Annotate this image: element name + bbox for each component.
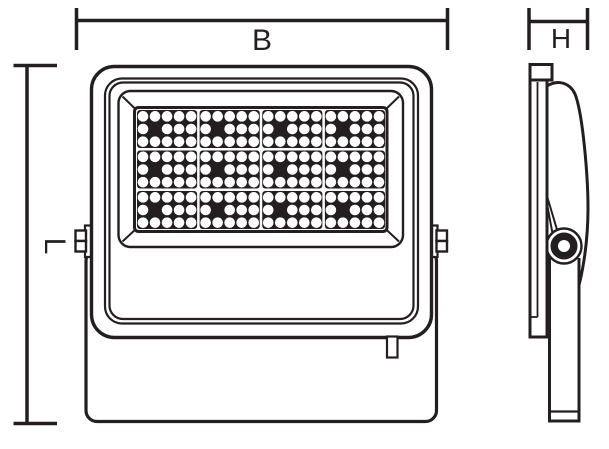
led-dot [138, 124, 149, 135]
led-dot [150, 192, 161, 203]
led-dot [362, 164, 373, 175]
led-dot [236, 192, 247, 203]
led-dot [248, 136, 259, 147]
led-dot [326, 164, 337, 175]
led-dot [275, 136, 286, 147]
led-dot-dark [337, 123, 349, 135]
led-dot [362, 205, 373, 216]
led-dot [200, 177, 211, 188]
led-dot-dark [211, 163, 223, 175]
led-dot [212, 111, 223, 122]
led-dot [338, 192, 349, 203]
led-dot [311, 152, 322, 163]
led-dot [186, 177, 197, 188]
led-dot [299, 136, 310, 147]
led-dot [224, 177, 235, 188]
led-dot [374, 124, 385, 135]
led-dot [362, 177, 373, 188]
led-dot [212, 192, 223, 203]
led-dot [350, 192, 361, 203]
dimension-height-label: L [38, 238, 71, 255]
led-dot [275, 192, 286, 203]
led-dot [350, 111, 361, 122]
led-dot [374, 205, 385, 216]
led-dot [236, 124, 247, 135]
led-dot [212, 136, 223, 147]
led-dot [299, 205, 310, 216]
led-dot [263, 124, 274, 135]
led-dot [299, 177, 310, 188]
side-top-cap [530, 65, 552, 81]
led-dot [311, 124, 322, 135]
front-view [76, 67, 448, 422]
led-dot [174, 205, 185, 216]
led-dot [138, 205, 149, 216]
led-dot [236, 205, 247, 216]
drawing-canvas: B H L [0, 0, 609, 449]
led-dot [311, 177, 322, 188]
led-dot [263, 111, 274, 122]
led-dot [326, 205, 337, 216]
led-dot [200, 152, 211, 163]
led-dot [326, 217, 337, 228]
led-dot-dark [149, 123, 161, 135]
led-dot [338, 111, 349, 122]
led-dot [248, 192, 259, 203]
led-dot [138, 111, 149, 122]
led-dot [299, 164, 310, 175]
led-dot [263, 152, 274, 163]
right-knob-bolt-lower [437, 241, 448, 252]
led-dot [186, 164, 197, 175]
led-dot [299, 111, 310, 122]
led-dot [287, 136, 298, 147]
led-dot [362, 111, 373, 122]
led-dot [138, 192, 149, 203]
led-dot [263, 205, 274, 216]
led-dot [224, 136, 235, 147]
led-dot [186, 136, 197, 147]
led-dot [150, 111, 161, 122]
led-dot [263, 217, 274, 228]
led-dot [287, 111, 298, 122]
led-dot [150, 217, 161, 228]
led-dot [326, 152, 337, 163]
led-dot [374, 136, 385, 147]
led-dot-dark [149, 204, 161, 216]
led-dot [287, 177, 298, 188]
led-dot [287, 152, 298, 163]
led-dot [200, 192, 211, 203]
led-dot [287, 124, 298, 135]
dimension-width-label: B [252, 24, 272, 57]
led-dot [287, 164, 298, 175]
led-dot [224, 111, 235, 122]
led-dot [162, 124, 173, 135]
led-dot [248, 152, 259, 163]
led-dot [311, 111, 322, 122]
led-dot [362, 192, 373, 203]
led-dot [362, 136, 373, 147]
led-dot [200, 205, 211, 216]
led-dot [311, 164, 322, 175]
led-dot [350, 152, 361, 163]
led-dot [326, 177, 337, 188]
led-dot [186, 152, 197, 163]
led-dot [275, 217, 286, 228]
led-dot [236, 111, 247, 122]
led-dot [150, 136, 161, 147]
left-pivot-knob [76, 226, 93, 258]
led-dot [174, 124, 185, 135]
led-dot [374, 164, 385, 175]
led-dot [162, 136, 173, 147]
led-dot [150, 152, 161, 163]
led-dot-dark [337, 163, 349, 175]
led-dot [162, 205, 173, 216]
led-dot [212, 152, 223, 163]
led-dot [275, 177, 286, 188]
led-dot [200, 217, 211, 228]
led-dot [236, 136, 247, 147]
led-dot [174, 192, 185, 203]
led-dot [299, 152, 310, 163]
led-dot [350, 136, 361, 147]
led-dot [138, 152, 149, 163]
latch-tab [387, 337, 398, 358]
led-dot-dark [211, 204, 223, 216]
led-dot [263, 192, 274, 203]
led-dot [248, 124, 259, 135]
led-dot [263, 136, 274, 147]
led-dot [326, 136, 337, 147]
led-dot [138, 177, 149, 188]
led-dot [350, 217, 361, 228]
led-dot [138, 217, 149, 228]
led-dot [350, 205, 361, 216]
led-dot [248, 217, 259, 228]
led-dot [200, 124, 211, 135]
led-dot [311, 136, 322, 147]
led-dot [174, 177, 185, 188]
side-view [530, 65, 588, 422]
led-dot [224, 217, 235, 228]
led-dot [326, 124, 337, 135]
dimension-depth-label: H [551, 23, 571, 54]
led-dot [338, 177, 349, 188]
led-dot [224, 152, 235, 163]
led-dot [186, 217, 197, 228]
led-dot [200, 111, 211, 122]
led-dot [224, 192, 235, 203]
led-dot [212, 177, 223, 188]
led-dot [138, 136, 149, 147]
led-dot [374, 192, 385, 203]
led-dot-dark [274, 163, 286, 175]
led-dot [248, 164, 259, 175]
led-dot [248, 205, 259, 216]
led-dot [311, 205, 322, 216]
led-dot [374, 111, 385, 122]
led-dot [362, 217, 373, 228]
led-dot [186, 124, 197, 135]
led-dot [299, 192, 310, 203]
led-dot [174, 217, 185, 228]
led-dot [374, 217, 385, 228]
led-dot [162, 152, 173, 163]
led-dot [263, 177, 274, 188]
led-dot [162, 177, 173, 188]
led-dot [200, 136, 211, 147]
led-dot [326, 111, 337, 122]
led-dot [275, 152, 286, 163]
left-knob-bolt-lower [76, 241, 87, 252]
led-dot [174, 111, 185, 122]
led-dot [299, 217, 310, 228]
side-front-panel [530, 65, 547, 338]
led-dot [174, 136, 185, 147]
side-bracket-arm [550, 252, 580, 421]
led-dot [186, 192, 197, 203]
led-dot [162, 192, 173, 203]
led-dot [174, 152, 185, 163]
led-dot-dark [211, 123, 223, 135]
right-knob-bolt-upper [437, 231, 448, 242]
led-dot [350, 164, 361, 175]
left-knob-bolt-upper [76, 231, 87, 242]
led-dot [236, 177, 247, 188]
led-dot [200, 164, 211, 175]
led-dot [287, 205, 298, 216]
led-dot [162, 217, 173, 228]
led-dot [212, 217, 223, 228]
led-dot [311, 192, 322, 203]
led-dot [248, 177, 259, 188]
led-dot-dark [337, 204, 349, 216]
led-dot [224, 124, 235, 135]
led-dot [138, 164, 149, 175]
led-dot [287, 217, 298, 228]
led-dot [236, 217, 247, 228]
led-dot [275, 111, 286, 122]
led-dot [338, 136, 349, 147]
led-dot [299, 124, 310, 135]
led-dot-dark [274, 123, 286, 135]
led-dot [374, 177, 385, 188]
led-dot [236, 164, 247, 175]
led-dot [350, 124, 361, 135]
led-dot-dark [149, 163, 161, 175]
led-dot [263, 164, 274, 175]
led-dot-dark [274, 204, 286, 216]
led-dot [287, 192, 298, 203]
led-dot [162, 164, 173, 175]
led-dot [362, 124, 373, 135]
led-dot [162, 111, 173, 122]
led-dot [326, 192, 337, 203]
led-dot [248, 111, 259, 122]
led-dot [338, 152, 349, 163]
led-dot [224, 164, 235, 175]
led-dot [224, 205, 235, 216]
led-dot [338, 217, 349, 228]
led-dot [186, 205, 197, 216]
led-dot [350, 177, 361, 188]
led-dot [374, 152, 385, 163]
led-dot [362, 152, 373, 163]
led-dot [150, 177, 161, 188]
floodlight-technical-drawing: B H L [0, 0, 609, 449]
led-dot [174, 164, 185, 175]
led-dot [236, 152, 247, 163]
led-dot [311, 217, 322, 228]
led-dot [186, 111, 197, 122]
